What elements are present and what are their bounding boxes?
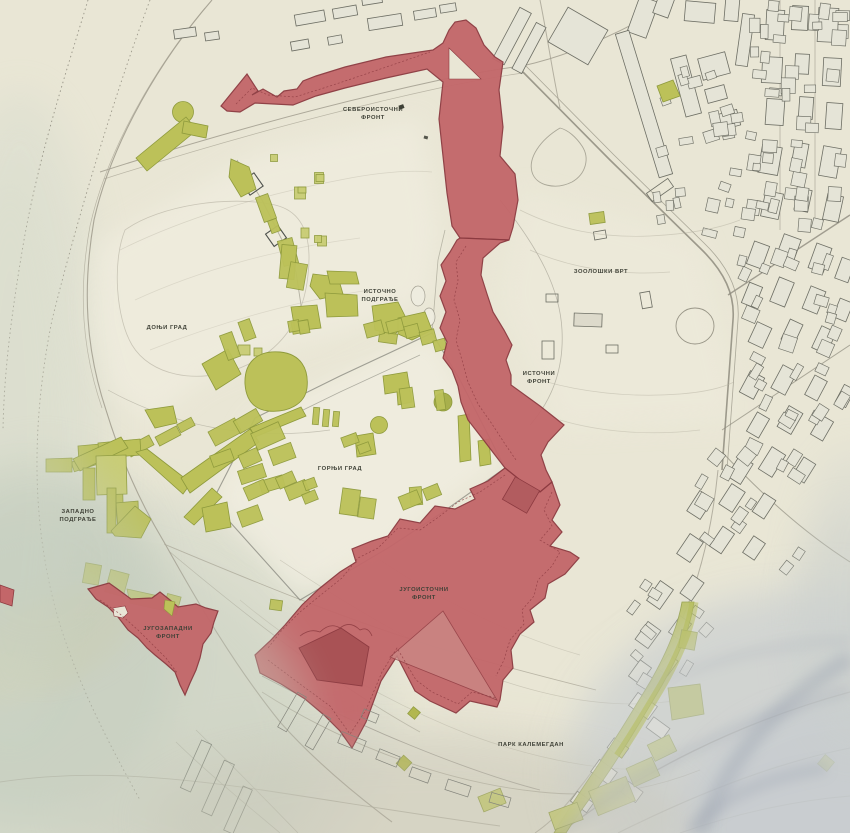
svg-text:ИСТОЧНО: ИСТОЧНО	[364, 289, 397, 295]
svg-text:ЈУГОЗАПАДНИ: ЈУГОЗАПАДНИ	[143, 626, 192, 632]
svg-text:ФРОНТ: ФРОНТ	[527, 379, 551, 385]
svg-text:ПОДГРАЂЕ: ПОДГРАЂЕ	[362, 297, 399, 303]
svg-text:ЗАПАДНО: ЗАПАДНО	[62, 509, 95, 515]
svg-text:ГОРЊИ ГРАД: ГОРЊИ ГРАД	[318, 466, 363, 472]
svg-text:ЈУГОИСТОЧНИ: ЈУГОИСТОЧНИ	[399, 587, 448, 593]
svg-text:ФРОНТ: ФРОНТ	[361, 115, 385, 121]
svg-text:ЗООЛОШКИ ВРТ: ЗООЛОШКИ ВРТ	[574, 269, 628, 275]
svg-text:СЕВЕРОИСТОЧНИ: СЕВЕРОИСТОЧНИ	[343, 107, 403, 113]
svg-text:ИСТОЧНИ: ИСТОЧНИ	[523, 371, 555, 377]
svg-text:ФРОНТ: ФРОНТ	[412, 595, 436, 601]
svg-text:ПАРК КАЛЕМЕГДАН: ПАРК КАЛЕМЕГДАН	[498, 742, 564, 748]
svg-text:ФРОНТ: ФРОНТ	[156, 634, 180, 640]
svg-text:ПОДГРАЂЕ: ПОДГРАЂЕ	[60, 517, 97, 523]
svg-text:ДОЊИ ГРАД: ДОЊИ ГРАД	[147, 325, 188, 331]
